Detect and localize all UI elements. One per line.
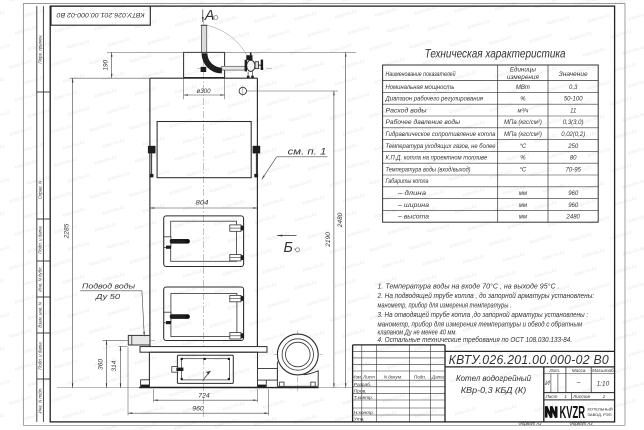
svg-text:2480: 2480 — [566, 215, 581, 221]
svg-text:0,3(3,0): 0,3(3,0) — [563, 120, 584, 126]
svg-text:мм: мм — [519, 215, 527, 221]
svg-text:°С: °С — [520, 144, 527, 150]
svg-text:960: 960 — [568, 191, 579, 197]
svg-text:Дата: Дата — [431, 375, 445, 380]
svg-text:Расход воды: Расход воды — [386, 107, 427, 114]
svg-text:%: % — [520, 156, 526, 162]
svg-text:Взам. инв. N: Взам. инв. N — [38, 301, 43, 327]
svg-text:N докум.: N докум. — [384, 375, 403, 380]
svg-text:Пров.: Пров. — [354, 388, 367, 394]
svg-text:960: 960 — [568, 203, 579, 209]
svg-text:см. п. 1: см. п. 1 — [288, 146, 327, 156]
svg-text:314: 314 — [111, 360, 118, 372]
svg-text:ø300: ø300 — [197, 88, 211, 95]
svg-text:KVZR: KVZR — [560, 402, 586, 422]
svg-text:Лист: Лист — [362, 375, 375, 380]
svg-text:Габариты котла: Габариты котла — [386, 178, 429, 185]
svg-text:360: 360 — [97, 358, 104, 370]
svg-text:клапаном Ду не менее 40 мм.: клапаном Ду не менее 40 мм. — [378, 330, 458, 337]
svg-text:Котел водогрейный: Котел водогрейный — [456, 373, 531, 383]
svg-text:2480: 2480 — [337, 212, 344, 228]
svg-text:Разраб.: Разраб. — [354, 382, 371, 388]
svg-text:Номинальная мощность: Номинальная мощность — [386, 84, 455, 91]
svg-text:Инв. N дубл.: Инв. N дубл. — [38, 266, 43, 291]
svg-text:Изм.: Изм. — [352, 375, 362, 380]
svg-text:Температура уходящих газов, не: Температура уходящих газов, не более — [386, 143, 497, 150]
svg-text:3. На отводящей трубе котла: 3. На отводящей трубе котла ,до запорной… — [378, 311, 589, 319]
svg-text:Подп. и дата: Подп. и дата — [38, 342, 43, 370]
svg-text:°С: °С — [520, 167, 527, 173]
svg-text:Подп. и дата: Подп. и дата — [38, 226, 43, 254]
svg-text:804: 804 — [196, 200, 210, 207]
svg-text:КВр-0,3 КБД (К): КВр-0,3 КБД (К) — [461, 385, 527, 395]
svg-text:0,02(0,2): 0,02(0,2) — [561, 132, 585, 138]
svg-text:Техническая характеристика: Техническая характеристика — [425, 47, 566, 61]
svg-text:–: – — [576, 379, 581, 386]
svg-text:Диапазон рабочего регулировани: Диапазон рабочего регулирования — [385, 96, 484, 103]
svg-text:Наименование показателей: Наименование показателей — [386, 71, 456, 78]
svg-text:КВТУ.026.201.00.000-02 В0: КВТУ.026.201.00.000-02 В0 — [449, 352, 610, 367]
svg-text:Гидравлическое сопротивление к: Гидравлическое сопротивление котла — [386, 131, 497, 138]
svg-text:МПа (кгс/см²): МПа (кгс/см²) — [504, 132, 542, 138]
svg-text:– ширина: – ширина — [397, 202, 430, 209]
svg-text:КОТЕЛЬНЫЙ: КОТЕЛЬНЫЙ — [588, 407, 613, 412]
svg-text:мм: мм — [519, 191, 527, 197]
svg-text:МВт: МВт — [516, 85, 530, 91]
svg-text:Формат А3: Формат А3 — [570, 421, 594, 426]
svg-text:50-100: 50-100 — [564, 97, 583, 103]
svg-text:Лит.: Лит. — [548, 368, 560, 373]
svg-text:1: 1 — [564, 394, 567, 399]
svg-text:0,3: 0,3 — [569, 85, 578, 91]
svg-text:Инв. N подл.: Инв. N подл. — [38, 388, 43, 414]
svg-text:– длина: – длина — [397, 190, 427, 197]
svg-text:Листов: Листов — [572, 394, 590, 399]
svg-text:Ду 50: Ду 50 — [95, 292, 120, 301]
svg-text:2190: 2190 — [325, 232, 332, 248]
svg-text:– высота: – высота — [397, 214, 430, 221]
svg-text:960: 960 — [192, 406, 204, 413]
svg-text:70-95: 70-95 — [566, 167, 582, 173]
svg-text:КВТУ.026.201.00.000-02 В0: КВТУ.026.201.00.000-02 В0 — [56, 11, 144, 18]
svg-text:м³/ч: м³/ч — [517, 108, 528, 114]
svg-text:2285: 2285 — [64, 223, 71, 239]
svg-text:80: 80 — [570, 156, 577, 162]
svg-text:А: А — [204, 8, 215, 24]
svg-text:11: 11 — [570, 108, 576, 114]
svg-text:Единицы: Единицы — [510, 68, 537, 74]
svg-text:724: 724 — [198, 393, 210, 400]
svg-text:2. На подводящей трубе котла: 2. На подводящей трубе котла , до запорн… — [377, 292, 595, 300]
svg-text:ЗАВОД. РЭП: ЗАВОД. РЭП — [588, 412, 612, 417]
svg-text:манометр, прибор для измерения: манометр, прибор для измерения температу… — [378, 321, 583, 329]
svg-text:Перв. примен.: Перв. примен. — [38, 34, 43, 63]
svg-text:Б: Б — [284, 240, 293, 256]
svg-text:Рабочее давление воды: Рабочее давление воды — [386, 119, 461, 126]
svg-text:Н.контр.: Н.контр. — [354, 410, 374, 416]
svg-text:Масса: Масса — [572, 368, 586, 373]
svg-text:4. Остальные технические тре: 4. Остальные технические требования по О… — [378, 336, 573, 344]
svg-text:Масштаб: Масштаб — [592, 368, 614, 373]
svg-text:Лист: Лист — [545, 394, 558, 399]
svg-text:Подвод воды: Подвод воды — [82, 281, 136, 290]
svg-text:1. Температура воды на входе: 1. Температура воды на входе 70°С , на в… — [378, 282, 560, 290]
svg-text:И: И — [545, 380, 550, 387]
svg-text:Т.контр.: Т.контр. — [354, 395, 373, 401]
svg-text:Подп.: Подп. — [414, 375, 426, 380]
svg-text:мм: мм — [519, 203, 527, 209]
svg-text:Температура воды (вход/выход): Температура воды (вход/выход) — [386, 166, 471, 173]
svg-text:250: 250 — [567, 144, 579, 150]
svg-text:Значение: Значение — [559, 72, 589, 78]
svg-text:К.П.Д. котла на проектном топл: К.П.Д. котла на проектном топливе — [386, 155, 488, 162]
svg-text:%: % — [520, 97, 526, 103]
svg-text:Справ. N: Справ. N — [38, 180, 43, 199]
svg-text:2: 2 — [602, 394, 606, 399]
svg-text:манометр, прибор для измерения: манометр, прибор для измерения температу… — [378, 302, 512, 310]
svg-text:1:10: 1:10 — [597, 380, 610, 387]
svg-text:Утв.: Утв. — [354, 417, 365, 423]
svg-text:Формат А3: Формат А3 — [519, 421, 543, 426]
svg-text:МПа (кгс/см²): МПа (кгс/см²) — [504, 120, 542, 126]
svg-text:измерения: измерения — [507, 75, 540, 81]
svg-text:190: 190 — [103, 60, 110, 71]
